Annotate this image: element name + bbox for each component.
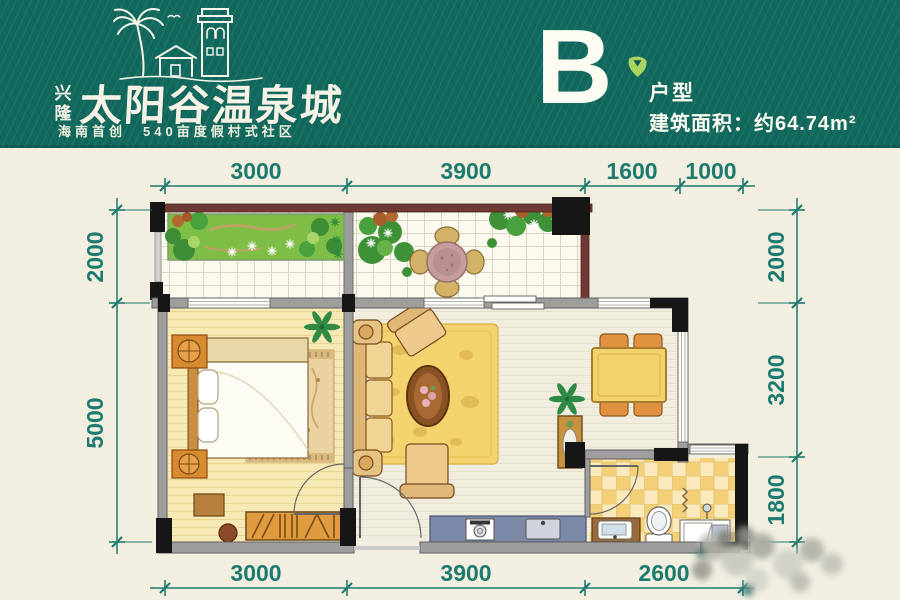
dim-left-1: 2000 (82, 231, 108, 282)
nightstand-bottom (172, 450, 207, 478)
dim-right-2: 3200 (763, 354, 789, 405)
dim-bottom-3: 2600 (638, 560, 689, 586)
floorplan-drawing: 3000 3900 1600 1000 3000 3900 2600 2000 … (0, 148, 900, 600)
bedroom-bench (194, 494, 224, 516)
dim-top-1: 3000 (230, 158, 281, 184)
dim-bottom-2: 3900 (440, 560, 491, 586)
terrace-slider-door (484, 296, 544, 309)
sofa (350, 320, 392, 476)
kitchen-counter (430, 516, 586, 542)
dim-top-2: 3900 (440, 158, 491, 184)
dim-bottom-1: 3000 (230, 560, 281, 586)
garden-bed (165, 212, 344, 261)
terrace-top-wall (152, 204, 592, 212)
bedroom-stool (219, 524, 237, 542)
brand-tagline: 海南首创 540亩度假村式社区 (58, 121, 296, 140)
dim-left-2: 5000 (82, 397, 108, 448)
kitchen-sink (526, 519, 560, 539)
dim-top-4: 1000 (685, 158, 736, 184)
armchair-bottom (400, 444, 454, 498)
leaf-icon (626, 55, 649, 78)
terrace-area (150, 197, 592, 302)
toilet (646, 507, 672, 543)
washing-machine (466, 519, 494, 540)
unit-area-label: 建筑面积：约64.74m² (649, 107, 857, 136)
washbasin (592, 518, 640, 542)
balcony-left-rail (155, 232, 161, 282)
watermark-blur (692, 526, 843, 596)
dim-top-3: 1600 (606, 158, 657, 184)
dim-right-1: 2000 (763, 231, 789, 282)
nightstand-top (172, 335, 207, 368)
dim-right-3: 1800 (763, 474, 789, 525)
unit-type-label: 户型 (649, 77, 695, 107)
coffee-table (407, 366, 449, 426)
floorplan-poster: 兴隆 太阳谷温泉城 海南首创 540亩度假村式社区 B 户型 建筑面积：约64.… (0, 0, 900, 600)
brand-prefix: 兴隆 (52, 84, 74, 124)
header-banner: 兴隆 太阳谷温泉城 海南首创 540亩度假村式社区 B 户型 建筑面积：约64.… (0, 0, 900, 148)
wardrobe (246, 512, 342, 540)
unit-letter: B (536, 14, 613, 120)
dining-table (592, 348, 666, 402)
